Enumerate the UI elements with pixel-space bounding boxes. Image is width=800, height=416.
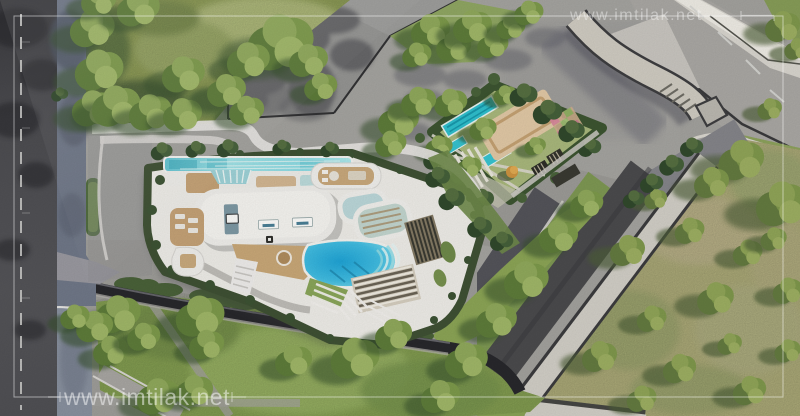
svg-text:www.imtilak.net: www.imtilak.net	[569, 7, 703, 24]
svg-text:www.imtilak.net: www.imtilak.net	[63, 384, 230, 410]
